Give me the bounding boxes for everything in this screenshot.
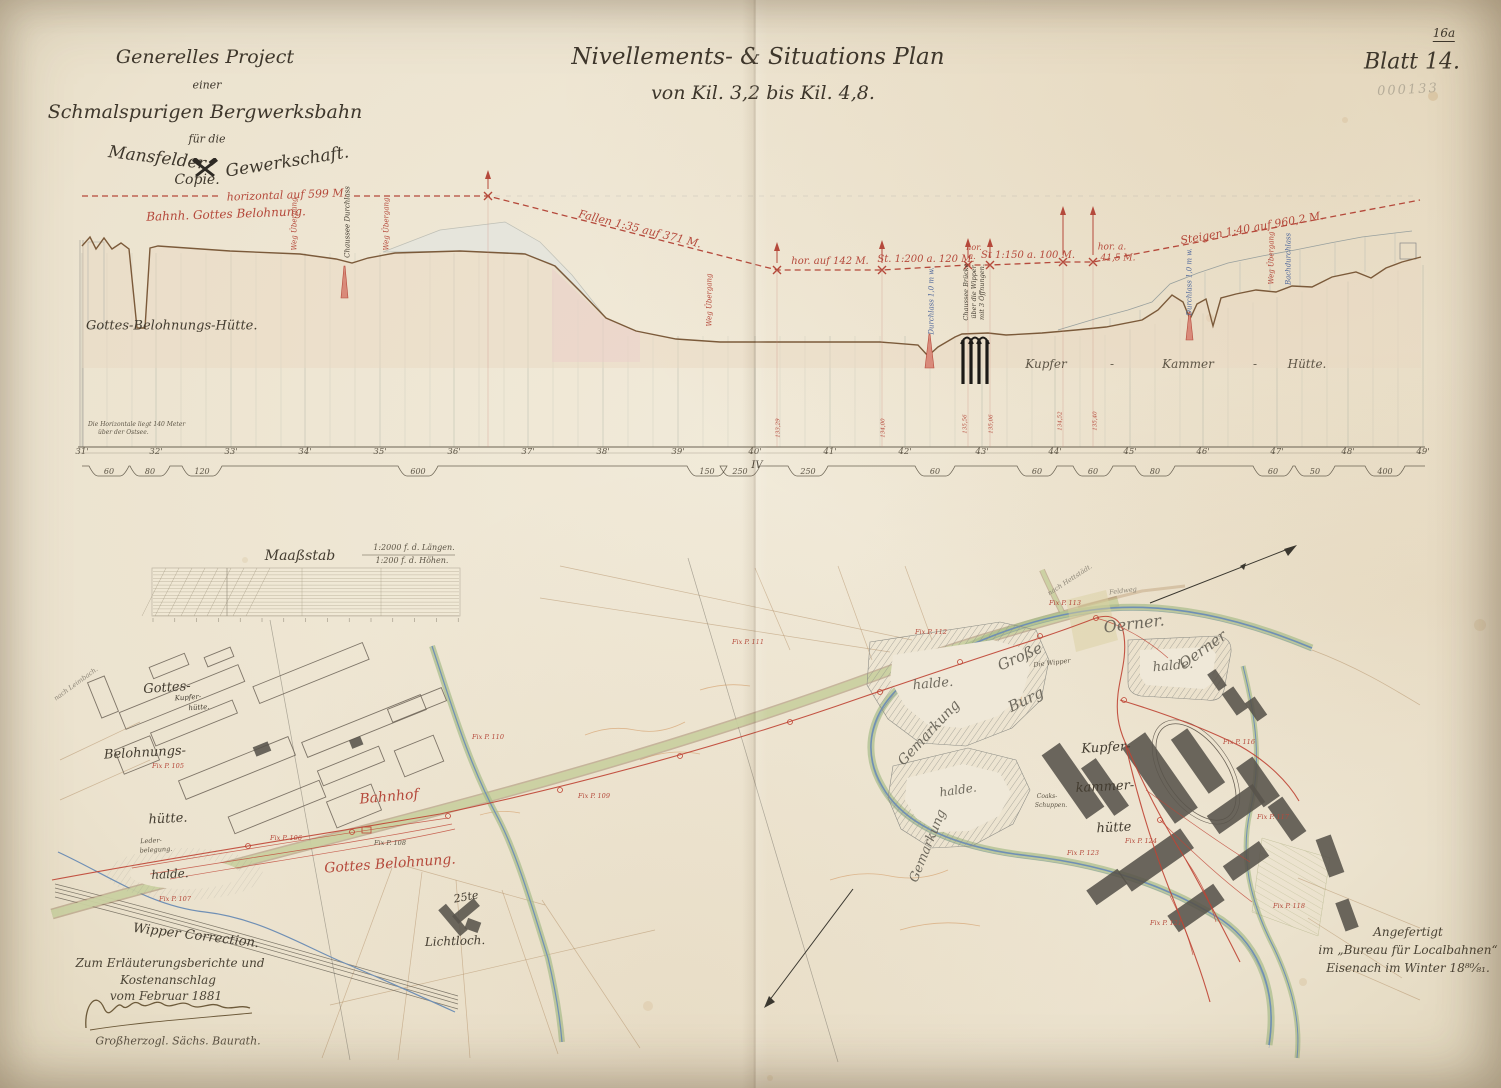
plan-sheet: Generelles Project einer Schmalspurigen … — [0, 0, 1501, 1088]
attribution-left-line2: Kostenanschlag — [120, 973, 216, 987]
survey-arrow — [764, 889, 853, 1008]
attribution-right-line1: Angefertigt — [1373, 925, 1443, 939]
project-title-line1: Generelles Project — [116, 46, 294, 68]
profile-drawing — [78, 170, 1425, 476]
attribution-left-line3: vom Februar 1881 — [110, 989, 222, 1003]
attribution-left-line4: Großherzogl. Sächs. Baurath. — [95, 1035, 260, 1048]
project-title-line2: einer — [193, 79, 222, 92]
cut-wash — [552, 268, 640, 362]
left-stream — [432, 646, 562, 1042]
attribution-right-line3: Eisenach im Winter 18⁸⁰⁄₈₁. — [1326, 961, 1490, 975]
corner-number: 16a — [1433, 26, 1455, 42]
attribution-right-line2: im „Bureau für Localbahnen“ — [1318, 943, 1497, 957]
sheet-label: Blatt 14. — [1364, 50, 1460, 75]
boundary-line-1 — [688, 558, 838, 1062]
distance-bracket — [82, 466, 1425, 476]
main-title-line1: Nivellements- & Situations Plan — [571, 44, 944, 70]
attribution-left-line1: Zum Erläuterungsberichte und — [75, 956, 264, 970]
project-title-line3: Schmalspurigen Bergwerksbahn — [48, 101, 363, 123]
copy-note: Copie. — [174, 172, 219, 188]
archive-stamp: 000133 — [1377, 81, 1439, 99]
lichtloch-buildings — [438, 898, 481, 936]
map-drawing — [52, 545, 1420, 1062]
scale-bar — [142, 555, 460, 622]
building-outline-profile-right — [1400, 243, 1416, 259]
signature — [86, 1000, 252, 1030]
project-title-line4: für die — [189, 133, 226, 146]
gottes-belohnung-works-buildings — [88, 643, 447, 834]
north-arrow — [1150, 545, 1297, 603]
main-title-line2: von Kil. 3,2 bis Kil. 4,8. — [651, 82, 875, 104]
